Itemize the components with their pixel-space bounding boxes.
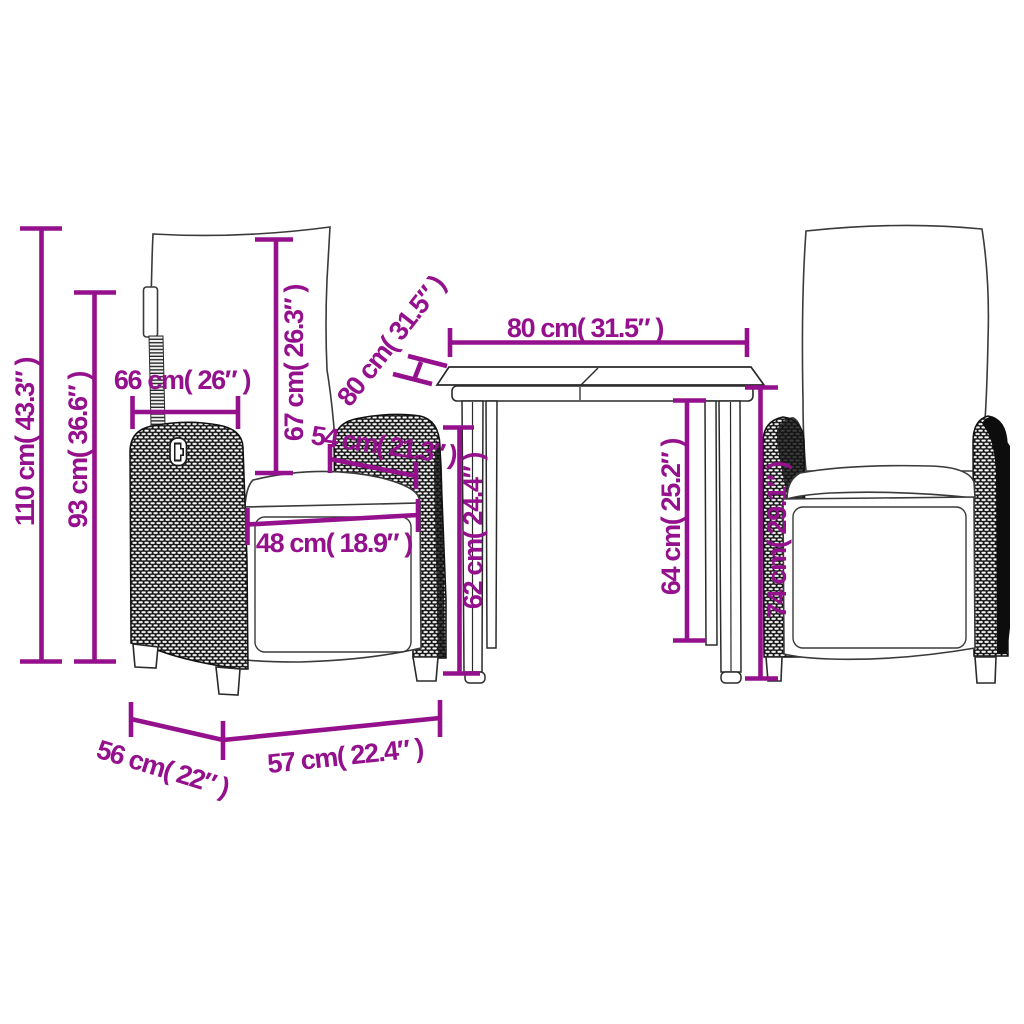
svg-text:110 cm( 43.3″ ): 110 cm( 43.3″ )	[10, 357, 40, 526]
svg-text:67 cm( 26.3″ ): 67 cm( 26.3″ )	[279, 285, 309, 441]
svg-text:93 cm( 36.6″ ): 93 cm( 36.6″ )	[63, 372, 93, 528]
svg-text:66 cm( 26″ ): 66 cm( 26″ )	[114, 365, 251, 395]
svg-text:62 cm( 24.4″ ): 62 cm( 24.4″ )	[458, 453, 488, 609]
svg-text:74 cm( 29.1″ ): 74 cm( 29.1″ )	[762, 462, 792, 618]
svg-text:48 cm( 18.9″ ): 48 cm( 18.9″ )	[256, 528, 412, 558]
svg-text:64 cm( 25.2″ ): 64 cm( 25.2″ )	[656, 439, 686, 595]
svg-text:80 cm( 31.5″ ): 80 cm( 31.5″ )	[507, 313, 663, 343]
